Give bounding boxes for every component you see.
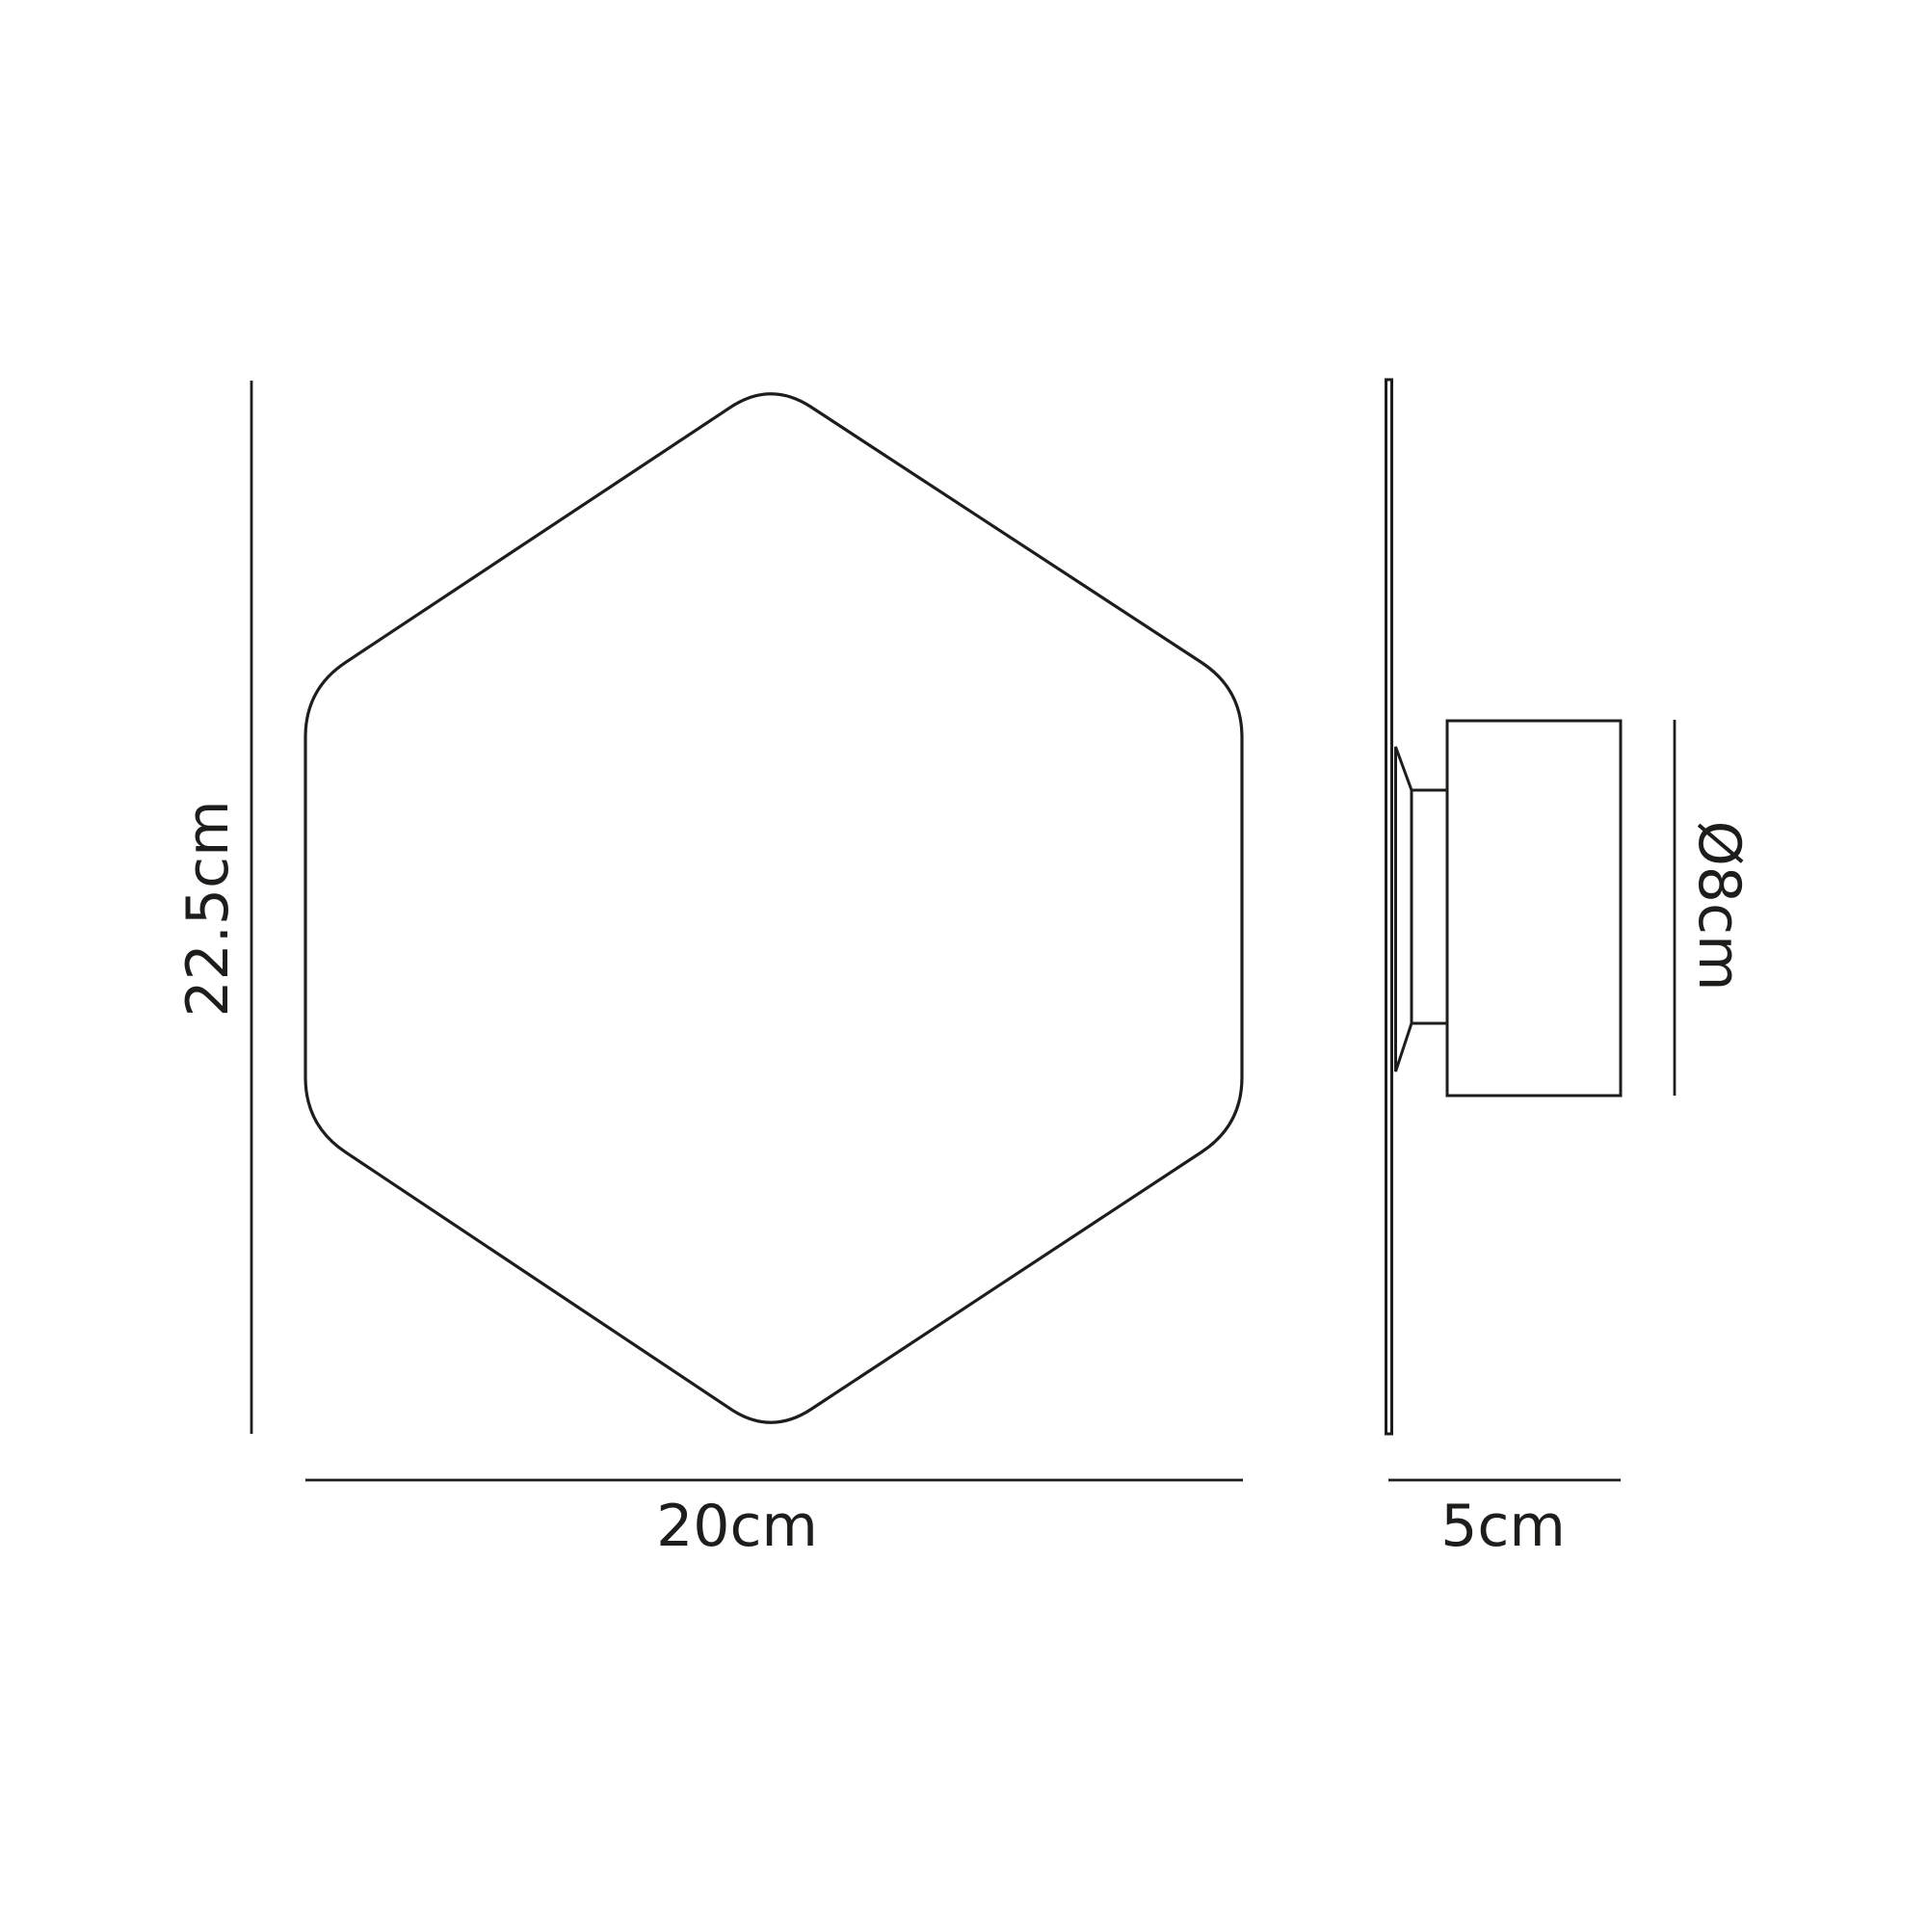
hexagon-shade-outline: [305, 394, 1242, 1422]
side-view-cylinder-body: [1447, 721, 1621, 1096]
side-view-taper: [1396, 747, 1412, 1072]
technical-drawing-canvas: 22.5cm 20cm Ø8cm 5cm: [0, 0, 1927, 1927]
side-view-plate-edge: [1386, 380, 1392, 1434]
height-dimension-label: 22.5cm: [174, 800, 242, 1017]
width-dimension-label: 20cm: [656, 1493, 818, 1560]
dimension-drawing: 22.5cm 20cm Ø8cm 5cm: [0, 0, 1927, 1927]
diameter-dimension-label: Ø8cm: [1685, 821, 1753, 992]
depth-dimension-label: 5cm: [1440, 1493, 1566, 1560]
